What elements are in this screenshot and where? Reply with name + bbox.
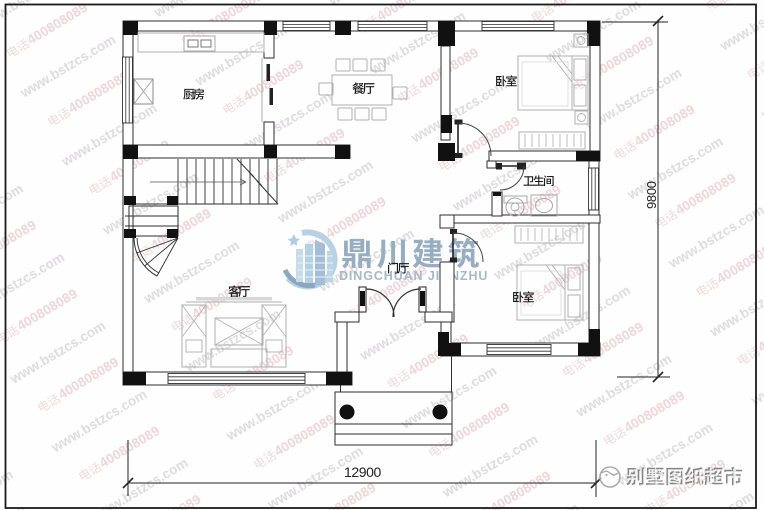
svg-text:12900: 12900 xyxy=(344,464,382,480)
svg-text:9800: 9800 xyxy=(644,181,659,209)
svg-text:DINGCHUAN JIANZHU: DINGCHUAN JIANZHU xyxy=(339,269,488,283)
